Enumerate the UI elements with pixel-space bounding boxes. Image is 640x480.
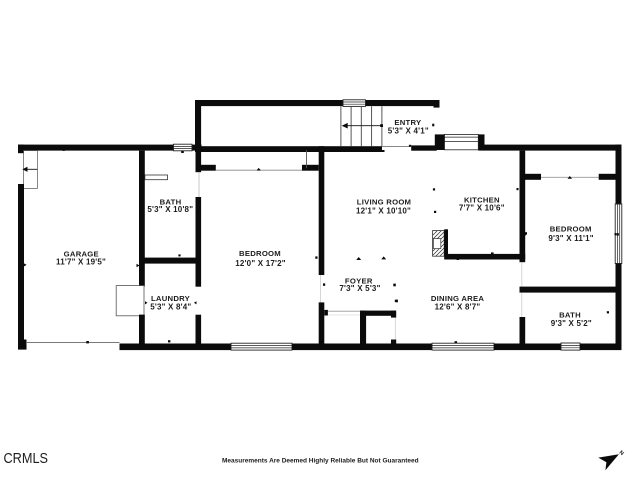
- svg-text:CRMLS: CRMLS: [4, 451, 49, 467]
- svg-text:12'1" X 10'10": 12'1" X 10'10": [356, 206, 411, 215]
- svg-text:11'7" X 19'5": 11'7" X 19'5": [56, 258, 106, 267]
- svg-text:12'0" X 17'2": 12'0" X 17'2": [235, 259, 285, 268]
- svg-text:ENTRY: ENTRY: [394, 118, 421, 127]
- svg-text:BEDROOM: BEDROOM: [239, 249, 281, 258]
- svg-text:12'6" X 8'7": 12'6" X 8'7": [435, 302, 481, 311]
- svg-text:5'3" X 10'8": 5'3" X 10'8": [147, 205, 193, 214]
- svg-text:LIVING ROOM: LIVING ROOM: [357, 198, 411, 207]
- svg-text:9'3" X 5'2": 9'3" X 5'2": [551, 319, 592, 328]
- svg-text:9'3" X 11'1": 9'3" X 11'1": [548, 234, 593, 243]
- svg-text:BEDROOM: BEDROOM: [550, 225, 592, 234]
- svg-text:7'3" X 5'3": 7'3" X 5'3": [339, 284, 380, 293]
- svg-text:5'3" X 8'4": 5'3" X 8'4": [150, 302, 191, 311]
- svg-text:7'7" X 10'6": 7'7" X 10'6": [459, 203, 505, 212]
- svg-text:Measurements Are Deemed Highly: Measurements Are Deemed Highly Reliable …: [222, 457, 419, 464]
- svg-text:5'3" X 4'1": 5'3" X 4'1": [388, 127, 429, 136]
- svg-text:BATH: BATH: [559, 310, 581, 319]
